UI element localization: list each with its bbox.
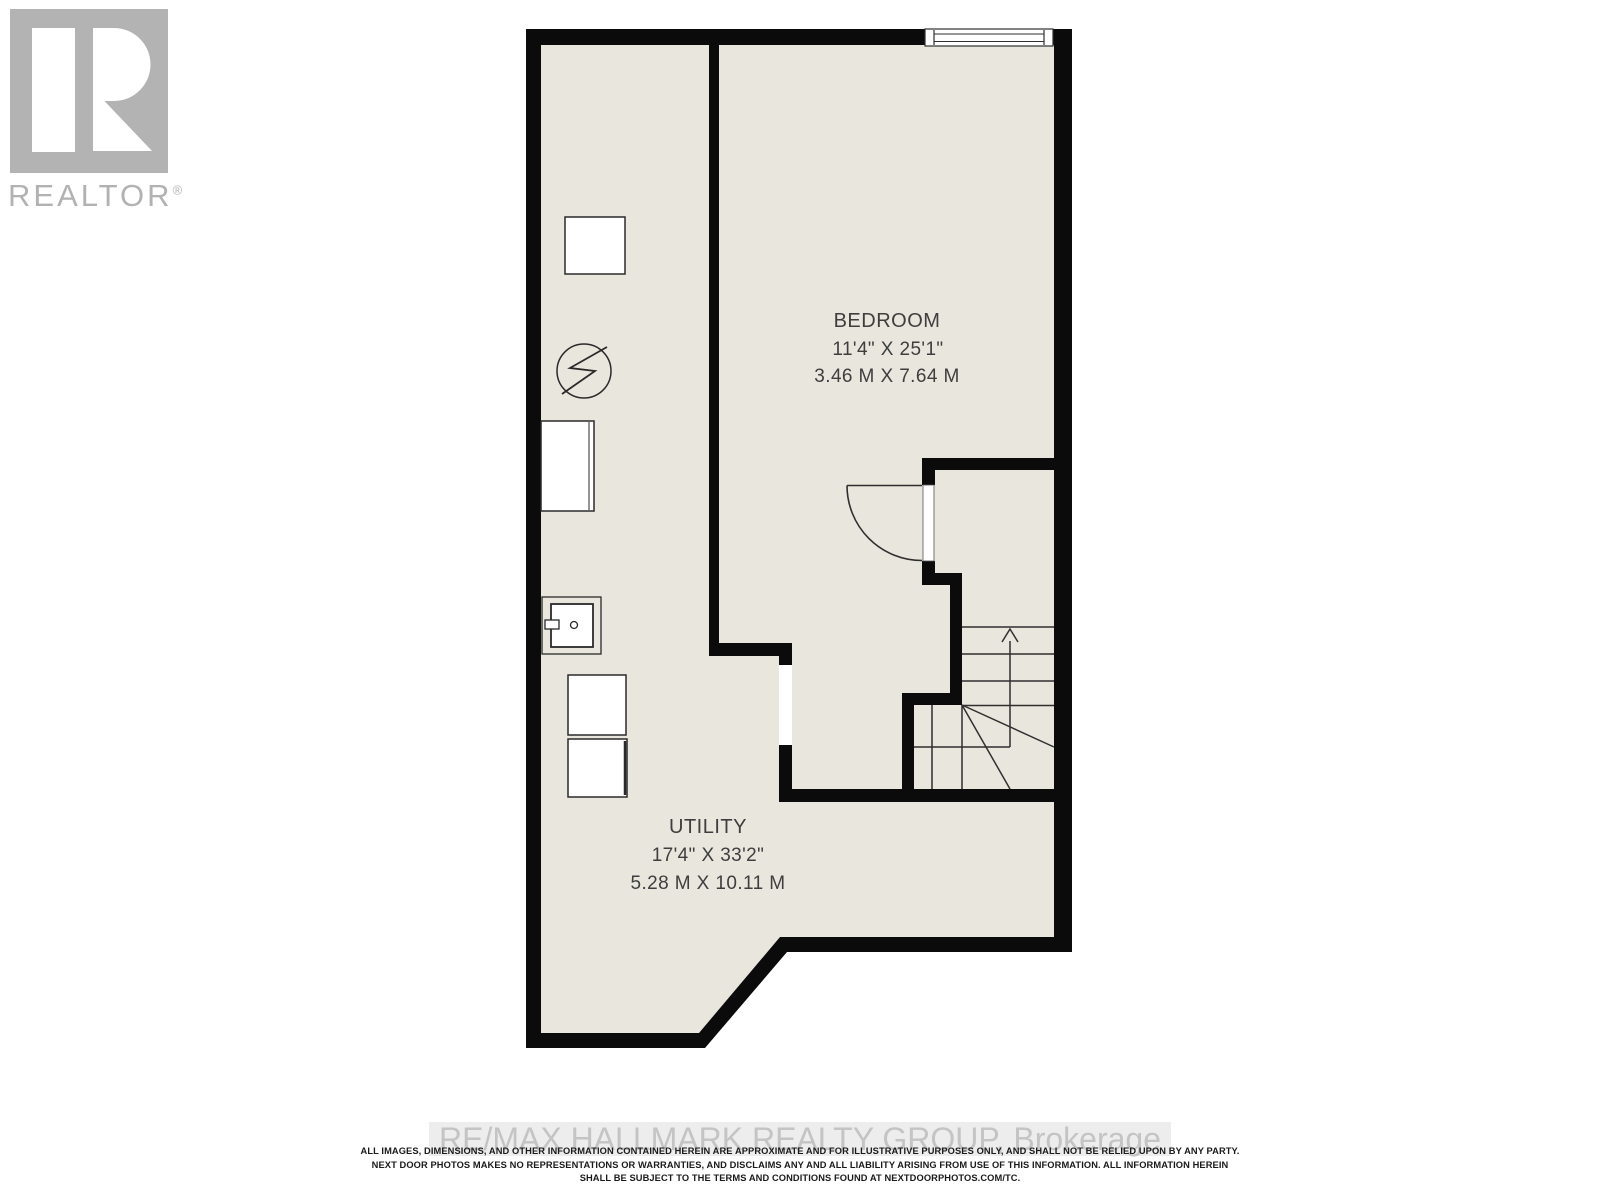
interior-wall: [922, 458, 1054, 470]
window: [925, 29, 1053, 46]
doorway-opening: [779, 665, 792, 745]
bedroom-dimensions-metric: 3.46 M X 7.64 M: [814, 366, 959, 387]
storage-cabinet-icon: [565, 217, 625, 274]
disclaimer: ALL IMAGES, DIMENSIONS, AND OTHER INFORM…: [0, 1145, 1600, 1186]
door-opening: [923, 485, 934, 561]
floorplan: BEDROOM 11'4" X 25'1" 3.46 M X 7.64 M UT…: [0, 0, 1600, 1200]
interior-wall: [779, 789, 1072, 802]
utility-dimensions-metric: 5.28 M X 10.11 M: [631, 873, 786, 894]
laundry-tub-icon: [542, 597, 601, 654]
interior-wall-divider: [709, 44, 719, 656]
washer-icon: [568, 675, 626, 735]
interior-wall: [902, 705, 914, 802]
utility-dimensions-imperial: 17'4" X 33'2": [652, 845, 765, 866]
dryer-icon: [568, 739, 627, 797]
interior-wall: [922, 458, 935, 485]
interior-wall: [902, 693, 962, 705]
bedroom-dimensions-imperial: 11'4" X 25'1": [832, 339, 943, 360]
interior-wall: [950, 573, 962, 705]
utility-label: UTILITY: [669, 816, 747, 838]
disclaimer-line-3: SHALL BE SUBJECT TO THE TERMS AND CONDIT…: [0, 1172, 1600, 1186]
bedroom-label: BEDROOM: [834, 310, 941, 332]
disclaimer-line-1: ALL IMAGES, DIMENSIONS, AND OTHER INFORM…: [0, 1145, 1600, 1159]
furnace-icon: [541, 421, 594, 511]
interior-wall: [779, 643, 792, 665]
disclaimer-line-2: NEXT DOOR PHOTOS MAKES NO REPRESENTATION…: [0, 1159, 1600, 1173]
floor: [541, 45, 1054, 1033]
